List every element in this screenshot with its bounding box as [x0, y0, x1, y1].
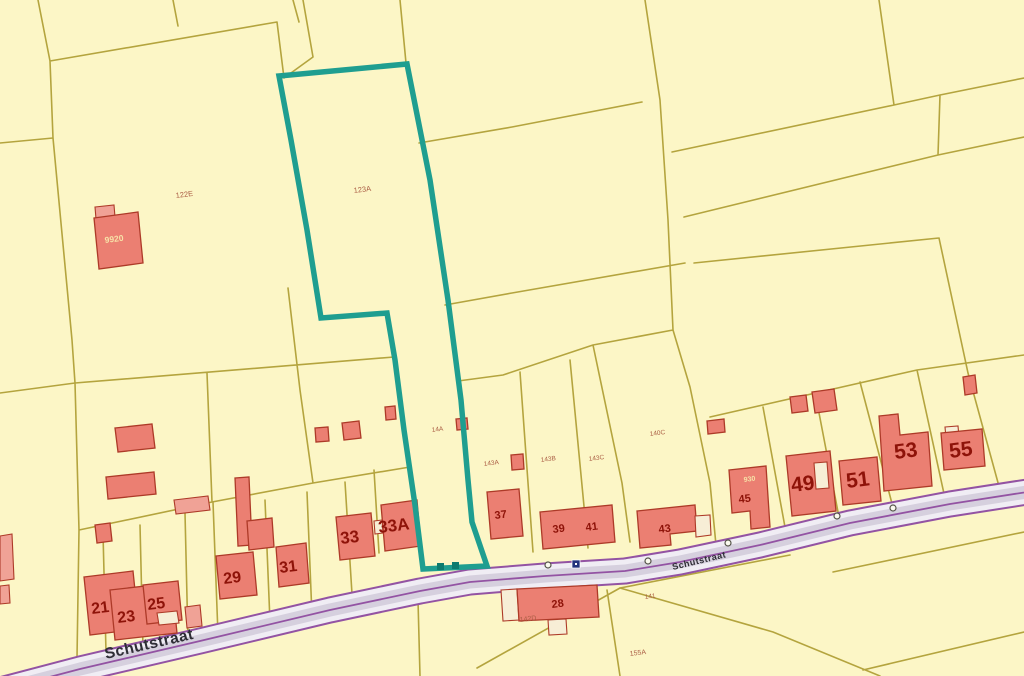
building-43-annex	[695, 515, 711, 537]
outbuilding	[315, 427, 329, 442]
outbuilding	[790, 395, 808, 413]
house-number-21: 21	[90, 599, 110, 618]
house-number-23: 23	[116, 608, 136, 627]
outbuilding	[95, 523, 112, 543]
farm-building	[106, 472, 156, 499]
building-25-annex	[157, 611, 179, 625]
parcel-vertex-handle[interactable]	[437, 563, 444, 570]
house-number-33: 33	[339, 527, 360, 548]
outbuilding	[548, 619, 567, 635]
house-number-33a: 33A	[377, 514, 410, 537]
outbuilding	[511, 454, 524, 470]
building-31-annex	[247, 518, 274, 550]
house-number-43: 43	[658, 523, 672, 536]
house-number-49: 49	[790, 471, 816, 497]
edge-building	[0, 585, 10, 604]
house-number-28: 28	[551, 598, 565, 611]
road-node-icon	[545, 562, 551, 568]
parcel-vertex-handle[interactable]	[452, 562, 459, 569]
road-node-icon	[645, 558, 651, 564]
outbuilding	[385, 406, 396, 420]
building-39-41	[540, 505, 615, 549]
outbuilding	[707, 419, 725, 434]
house-number-53: 53	[893, 438, 919, 464]
road-node-icon	[890, 505, 896, 511]
house-number-39: 39	[552, 523, 566, 536]
road-node-icon	[725, 540, 731, 546]
outbuilding	[342, 421, 361, 440]
house-number-41: 41	[585, 521, 599, 534]
parcel-label-141: 141	[644, 593, 656, 601]
outbuilding	[963, 375, 977, 395]
edge-building	[0, 534, 14, 581]
house-number-55: 55	[948, 437, 974, 463]
house-number-45: 45	[738, 493, 752, 506]
parcel-label-14a: 14A	[431, 426, 444, 434]
house-number-31: 31	[278, 558, 298, 577]
house-number-29: 29	[222, 569, 242, 588]
house-number-37: 37	[494, 509, 508, 522]
house-number-25: 25	[146, 595, 166, 614]
farm-building	[115, 424, 155, 452]
building-28-annex	[501, 589, 519, 621]
house-number-51: 51	[845, 467, 871, 493]
outbuilding	[812, 389, 837, 413]
building-annotation: 930	[743, 476, 756, 484]
road-node-icon	[834, 513, 840, 519]
outbuilding	[185, 605, 202, 628]
map-viewport[interactable]: Schutstraat Schutstraat	[0, 0, 1024, 676]
road-sign-icon	[572, 560, 580, 568]
building-49-annex	[814, 462, 829, 489]
